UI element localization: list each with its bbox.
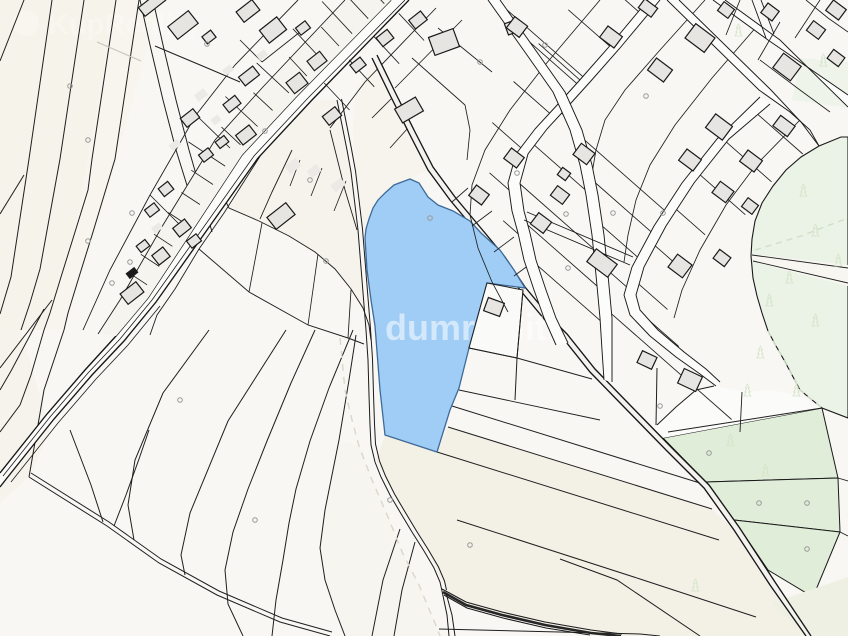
svg-text:dumrealit: dumrealit — [385, 307, 547, 348]
